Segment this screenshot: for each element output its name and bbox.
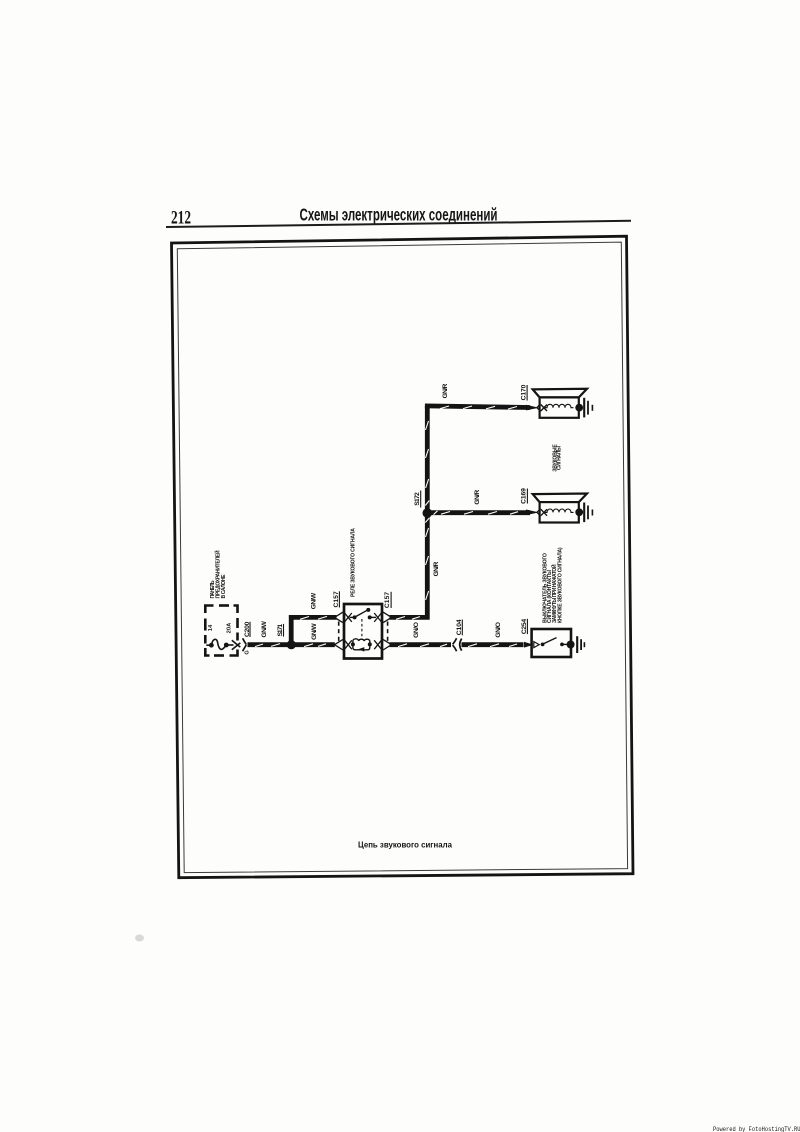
svg-text:GN/W: GN/W xyxy=(261,620,268,637)
svg-text:20A: 20A xyxy=(227,622,233,633)
svg-text:S172: S172 xyxy=(414,492,421,506)
svg-text:В САЛОНЕ: В САЛОНЕ xyxy=(221,574,227,599)
svg-text:СИГНАЛЫ: СИГНАЛЫ xyxy=(557,446,563,470)
svg-text:C170: C170 xyxy=(520,384,527,400)
svg-text:Цепь звукового сигнала: Цепь звукового сигнала xyxy=(358,839,452,849)
svg-text:КНОПКЕ ЗВУКОВОГО СИГНАЛА): КНОПКЕ ЗВУКОВОГО СИГНАЛА) xyxy=(557,547,563,623)
svg-text:GN/O: GN/O xyxy=(495,622,502,638)
svg-text:14: 14 xyxy=(208,624,214,631)
svg-text:Powered by FotoHostingTV.RU: Powered by FotoHostingTV.RU xyxy=(713,1126,800,1132)
svg-text:G: G xyxy=(245,650,251,654)
svg-text:Схемы электрических соединений: Схемы электрических соединений xyxy=(300,204,498,224)
svg-text:212: 212 xyxy=(171,208,191,228)
svg-text:GN/R: GN/R xyxy=(474,490,481,505)
svg-text:GN/W: GN/W xyxy=(310,592,317,609)
svg-text:C169: C169 xyxy=(521,488,528,504)
svg-text:GN/R: GN/R xyxy=(442,383,449,398)
svg-text:GN/O: GN/O xyxy=(413,622,420,638)
svg-text:C157: C157 xyxy=(384,592,391,608)
svg-text:РЕЛЕ ЗВУКОВОГО СИГНАЛА: РЕЛЕ ЗВУКОВОГО СИГНАЛА xyxy=(350,528,356,597)
svg-text:GN/R: GN/R xyxy=(433,561,440,576)
svg-text:GN/W: GN/W xyxy=(311,623,318,640)
